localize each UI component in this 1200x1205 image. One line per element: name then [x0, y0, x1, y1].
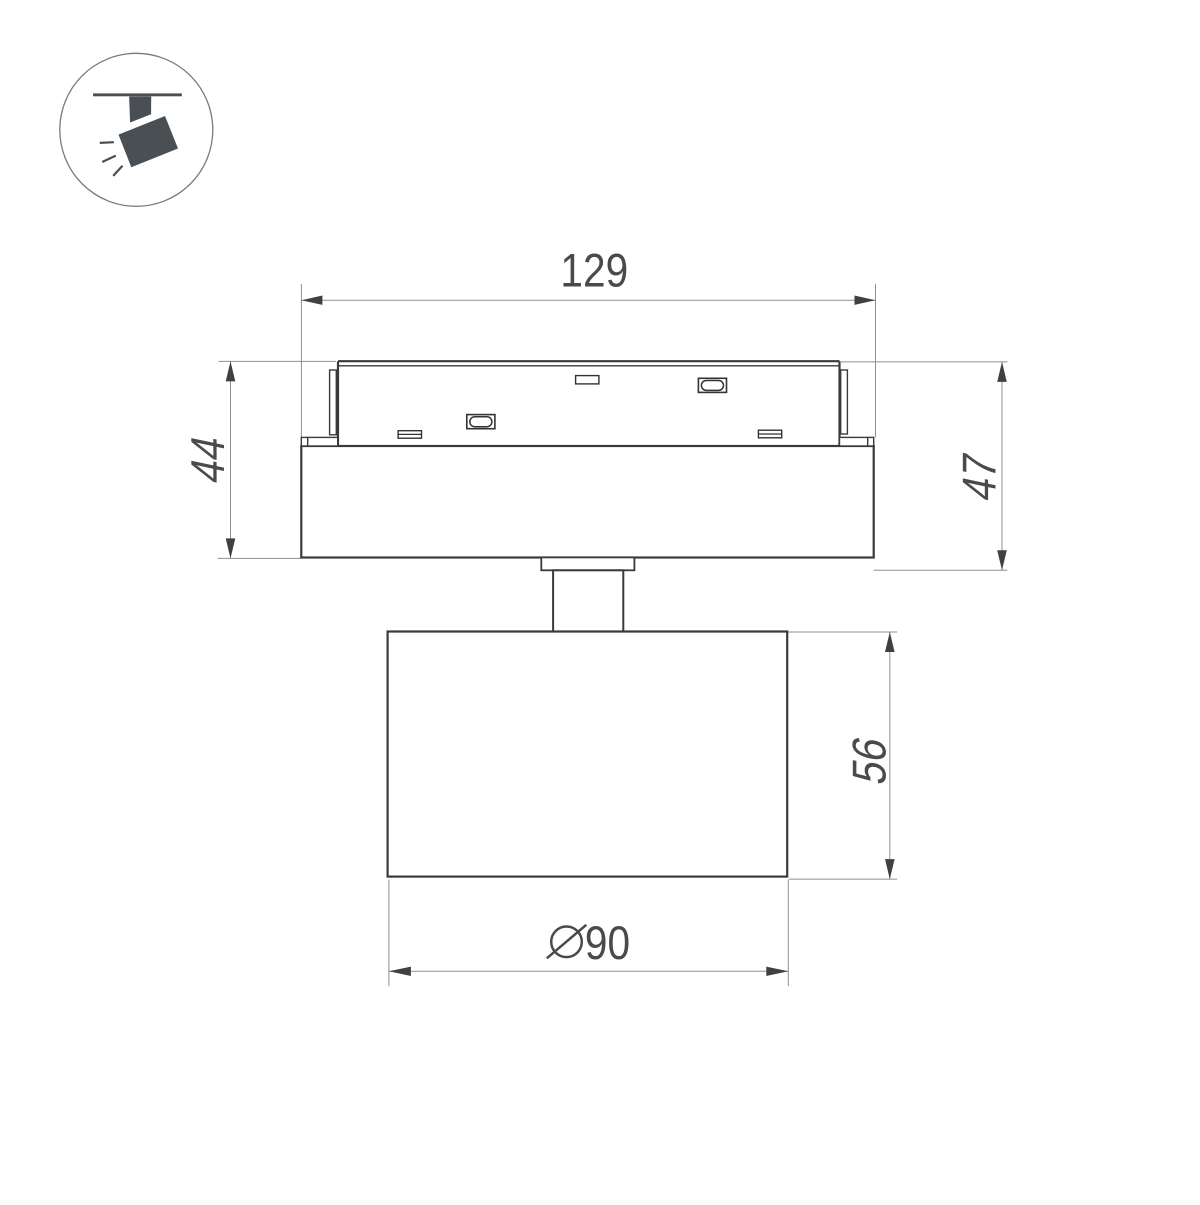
svg-text:129: 129 [560, 245, 628, 298]
svg-text:90: 90 [585, 917, 630, 970]
